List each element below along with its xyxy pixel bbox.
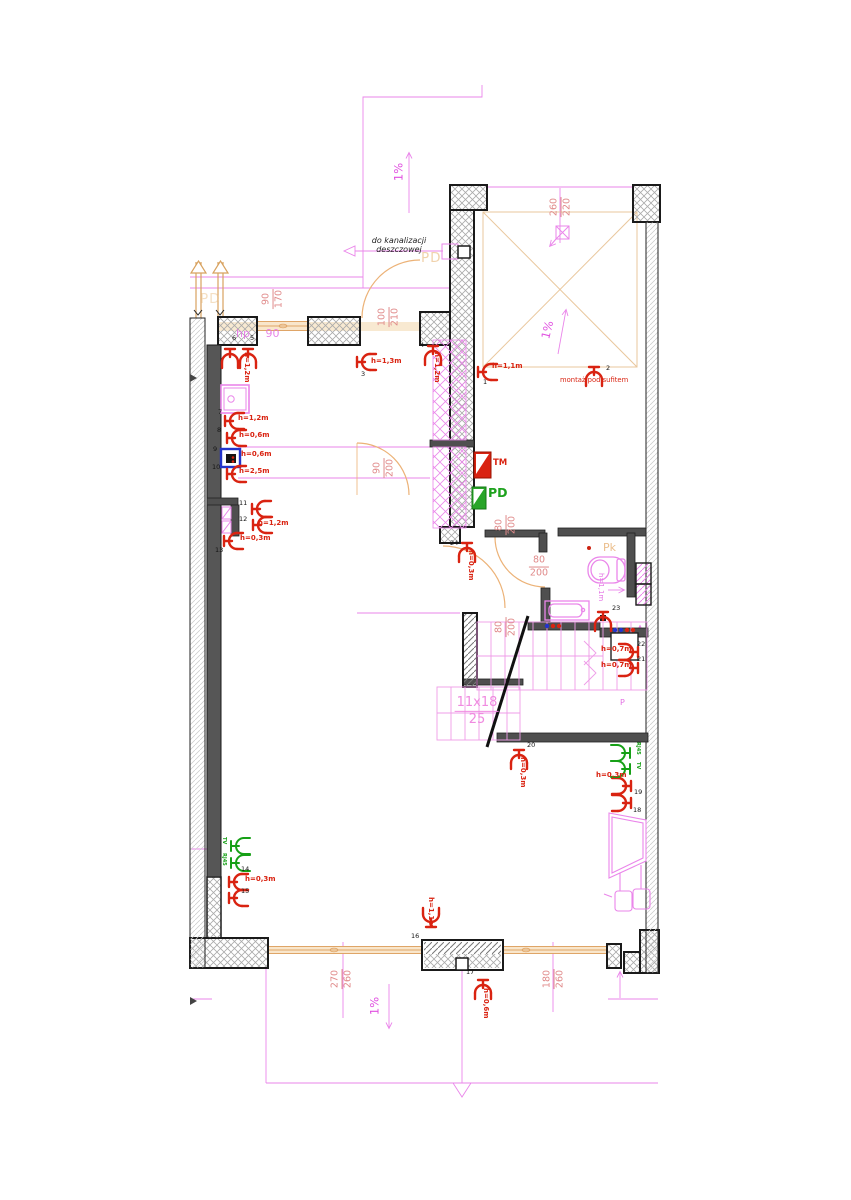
- electrical-point-1: [478, 364, 497, 380]
- floor-plan-canvas: do kanalizacji deszczowej PD PD hp 90 Pk…: [0, 0, 851, 1200]
- inner-wall-left: [207, 345, 221, 877]
- socket-dot: [619, 628, 623, 632]
- washing-machine: [611, 633, 638, 660]
- pd-panel: [472, 487, 486, 509]
- electrical-point-6: [222, 349, 238, 368]
- signal-point-tv-0: [231, 838, 250, 854]
- electrical-point-21: [619, 660, 638, 676]
- electrical-point-20: [511, 750, 527, 769]
- hatched-pillar: [463, 613, 477, 687]
- signal-point-rj45-1: [231, 855, 250, 871]
- electrical-point-17: [475, 980, 491, 999]
- tm-panel: [474, 452, 491, 478]
- socket-dot: [551, 624, 555, 628]
- socket-dot: [631, 628, 635, 632]
- desk-unit: [604, 813, 650, 911]
- duct-cells: [636, 563, 651, 605]
- ceiling-point-dot: [587, 546, 591, 550]
- shower-tray: [221, 385, 249, 413]
- electrical-point-2: [586, 367, 602, 386]
- electrical-point-3: [357, 354, 376, 370]
- signal-point-rj45-2: [611, 745, 630, 761]
- electrical-point-14: [229, 874, 248, 890]
- window-bottom-right: [503, 946, 607, 954]
- socket-dot: [545, 624, 549, 628]
- duct-shaft: [433, 340, 466, 528]
- signal-point-tv-3: [611, 761, 630, 777]
- electrical-point-19: [612, 778, 631, 794]
- electrical-point-15: [229, 890, 248, 906]
- floor-plan-drawing: [0, 0, 851, 1200]
- electrical-point-16: [423, 908, 439, 927]
- window-top-left: [257, 321, 308, 331]
- cabinet-cells: [222, 507, 231, 533]
- socket-dot: [625, 628, 629, 632]
- socket-dot: [557, 624, 561, 628]
- wall-stub-top: [458, 246, 470, 258]
- roof-drain: [550, 226, 569, 246]
- rain-pipes: [191, 261, 228, 318]
- socket-dot: [613, 628, 617, 632]
- window-bottom-left: [268, 946, 422, 954]
- electrical-point-24: [459, 543, 475, 562]
- electrical-point-8: [227, 430, 246, 446]
- electrical-point-12: [253, 517, 272, 533]
- electrical-point-11: [252, 501, 271, 517]
- junction-box-9: [221, 449, 240, 467]
- washbasin: [545, 601, 589, 620]
- window-pier: [422, 940, 503, 970]
- walls: [190, 185, 660, 973]
- toilet: [588, 557, 625, 583]
- electrical-point-7: [225, 413, 244, 429]
- outer-wall-left: [190, 318, 205, 968]
- electrical-point-10: [227, 466, 246, 482]
- electrical-point-18: [612, 795, 631, 811]
- electrical-point-5: [240, 349, 256, 368]
- section-mark: [190, 997, 197, 1005]
- slope-arrow-terrace: [558, 310, 566, 354]
- partition-walls: [207, 440, 648, 742]
